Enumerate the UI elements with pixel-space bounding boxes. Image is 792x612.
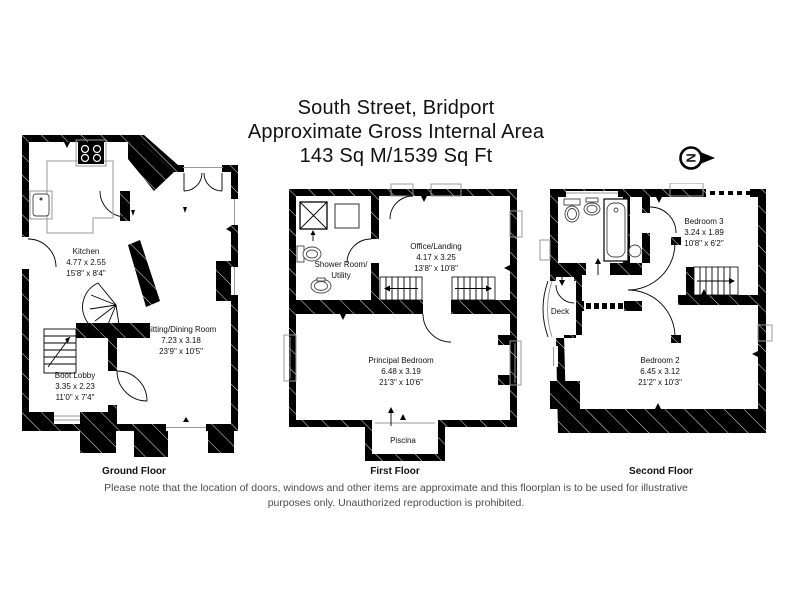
caption-second-floor: Second Floor xyxy=(629,466,693,477)
basin-icon xyxy=(586,198,598,202)
cupboard-icon xyxy=(335,204,359,228)
room-dims-sitting-metric: 7.23 x 3.18 xyxy=(161,336,201,345)
title-address: South Street, Bridport xyxy=(0,96,792,120)
room-label-deck: Deck xyxy=(551,307,570,316)
stairs-right xyxy=(452,277,495,300)
room-dims-boot-lobby-metric: 3.35 x 2.23 xyxy=(55,382,95,391)
room-dims-sitting-imperial: 23'9" x 10'5" xyxy=(159,347,203,356)
first-floor-labels: Shower Room/ Utility Office/Landing 4.17… xyxy=(315,242,462,445)
room-label-sitting-dining: Sitting/Dining Room xyxy=(146,325,217,334)
first-floor-walls xyxy=(289,189,517,461)
second-floor-walls xyxy=(550,189,766,433)
room-label-boot-lobby: Boot Lobby xyxy=(55,371,95,380)
room-dims-kitchen-imperial: 15'8" x 8'4" xyxy=(66,269,106,278)
room-dims-principal-imperial: 21'3" x 10'6" xyxy=(379,378,423,387)
room-dims-bedroom3-metric: 3.24 x 1.89 xyxy=(684,228,724,237)
straight-stair xyxy=(44,329,76,373)
room-dims-kitchen-metric: 4.77 x 2.55 xyxy=(66,258,106,267)
room-dims-office-imperial: 13'8" x 10'8" xyxy=(414,264,458,273)
disclaimer-text: Please note that the location of doors, … xyxy=(0,481,792,510)
ground-floor-plan: Kitchen 4.77 x 2.55 15'8" x 8'4" Sitting… xyxy=(20,133,252,465)
basin-icon xyxy=(629,245,641,257)
room-label-shower-room: Shower Room/ xyxy=(315,260,369,269)
caption-first-floor: First Floor xyxy=(370,466,419,477)
ground-floor-walls xyxy=(22,135,238,457)
room-dims-boot-lobby-imperial: 11'0" x 7'4" xyxy=(56,393,95,402)
compass-north-marker: N xyxy=(681,148,716,169)
stove-icon xyxy=(78,142,104,164)
room-dims-bedroom3-imperial: 10'8" x 6'2" xyxy=(684,239,724,248)
disclaimer-line-1: Please note that the location of doors, … xyxy=(0,481,792,496)
room-dims-office-metric: 4.17 x 3.25 xyxy=(416,253,456,262)
toilet-icon xyxy=(564,199,580,205)
floorplan-page: South Street, Bridport Approximate Gross… xyxy=(0,0,792,612)
first-floor-plan: Shower Room/ Utility Office/Landing 4.17… xyxy=(283,183,523,475)
room-label-kitchen: Kitchen xyxy=(73,247,100,256)
caption-ground-floor: Ground Floor xyxy=(102,466,166,477)
compass-letter: N xyxy=(684,153,699,162)
stairs xyxy=(694,267,738,295)
room-label-principal-bedroom: Principal Bedroom xyxy=(368,356,434,365)
room-label-bedroom-2: Bedroom 2 xyxy=(640,356,680,365)
room-label-bedroom-3: Bedroom 3 xyxy=(684,217,724,226)
room-label-shower-room-2: Utility xyxy=(331,271,351,280)
stairs-left xyxy=(380,277,422,300)
room-label-piscina: Piscina xyxy=(390,436,416,445)
room-dims-bedroom2-imperial: 21'2" x 10'3" xyxy=(638,378,682,387)
room-dims-bedroom2-metric: 6.45 x 3.12 xyxy=(640,367,680,376)
compass-icon: N xyxy=(669,136,729,180)
second-floor-plan: Bedroom 3 3.24 x 1.89 10'8" x 6'2" Deck … xyxy=(538,183,778,465)
room-dims-principal-metric: 6.48 x 3.19 xyxy=(381,367,421,376)
room-label-office-landing: Office/Landing xyxy=(410,242,461,251)
disclaimer-line-2: purposes only. Unauthorized reproduction… xyxy=(0,496,792,511)
kitchen-fixtures xyxy=(30,140,113,233)
